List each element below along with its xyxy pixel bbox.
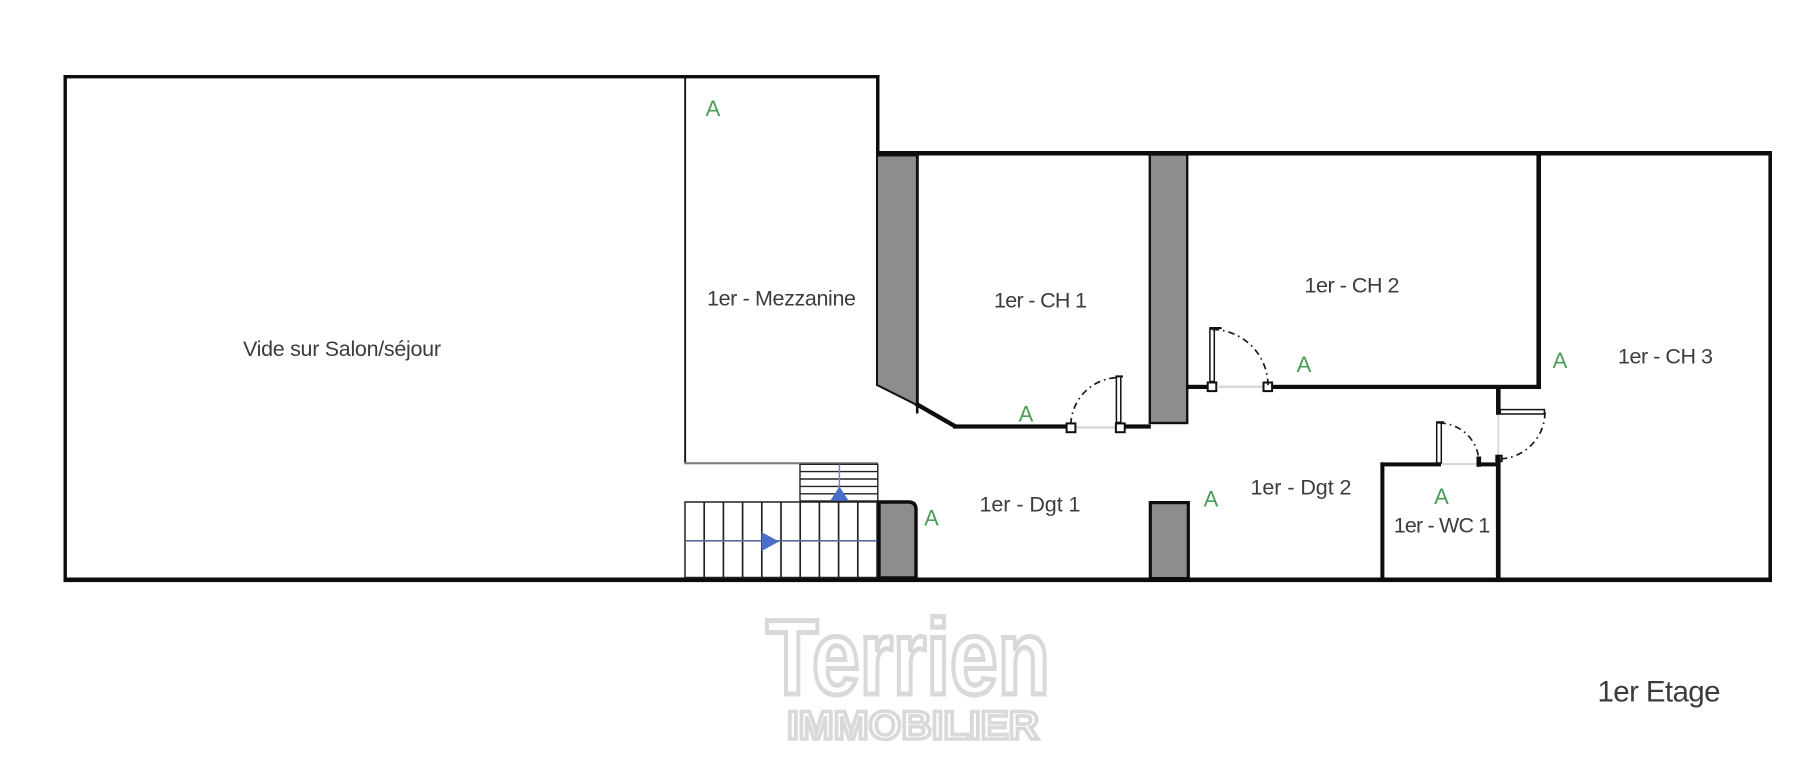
svg-text:IMMOBILIER: IMMOBILIER [787,704,1039,748]
svg-text:Terrien: Terrien [766,597,1050,717]
svg-text:1er - CH 1: 1er - CH 1 [994,289,1087,313]
svg-text:A: A [706,96,721,121]
svg-text:1er Etage: 1er Etage [1598,675,1721,708]
svg-text:A: A [1019,401,1034,426]
svg-text:A: A [1553,348,1568,373]
svg-text:Vide sur Salon/séjour: Vide sur Salon/séjour [243,337,441,361]
svg-text:A: A [924,506,939,531]
svg-text:A: A [1434,484,1449,509]
svg-text:1er - CH 3: 1er - CH 3 [1618,345,1713,369]
svg-text:1er - Dgt 2: 1er - Dgt 2 [1251,476,1352,500]
svg-text:A: A [1297,352,1312,377]
svg-text:1er - WC 1: 1er - WC 1 [1394,514,1491,538]
svg-text:1er - Mezzanine: 1er - Mezzanine [707,287,856,311]
svg-text:1er - Dgt 1: 1er - Dgt 1 [980,493,1081,517]
svg-text:A: A [1204,486,1219,511]
svg-text:1er - CH 2: 1er - CH 2 [1305,274,1400,298]
